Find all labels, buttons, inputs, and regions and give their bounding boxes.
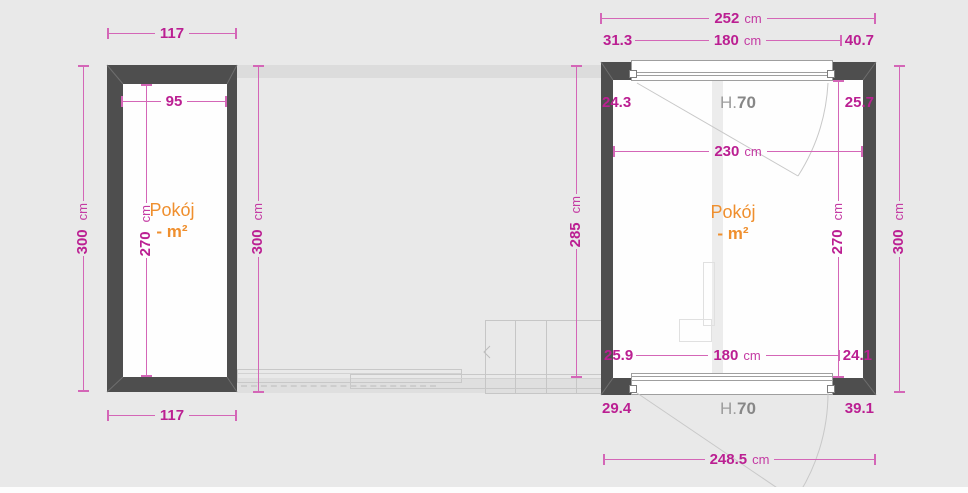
dim-label: 300cm — [250, 201, 266, 256]
dim-unit: cm — [752, 453, 774, 466]
dim-value: 117 — [155, 408, 189, 423]
window-bottom-body — [631, 380, 833, 395]
right-room-label: Pokój - m² — [691, 202, 775, 244]
window-hinge — [827, 70, 835, 78]
dim-segment-left: 24.3 — [599, 95, 634, 110]
dim-label: 270cm — [830, 201, 846, 256]
dim-line — [615, 151, 709, 152]
dim-tick — [78, 390, 89, 392]
dim-left-room-bottom-width: 117 — [107, 407, 237, 423]
left-room-label: Pokój - m² — [130, 200, 214, 242]
window-hinge — [827, 385, 835, 393]
dim-unit: cm — [744, 145, 766, 158]
stair-step — [516, 321, 546, 393]
dim-value: 117 — [155, 26, 189, 41]
dim-segment-right: 39.1 — [842, 401, 877, 416]
dim-line — [576, 67, 577, 194]
room-name: Pokój — [130, 200, 214, 222]
dim-right-room-inner-width: 230 cm — [613, 143, 863, 159]
dim-value: 180 — [708, 348, 743, 363]
dim-tick — [253, 391, 264, 393]
dim-line — [146, 258, 147, 375]
window-bottom — [629, 372, 835, 397]
dim-segment-right: 24.1 — [840, 348, 875, 363]
dim-tick — [141, 375, 152, 377]
dim-segment-right: 40.7 — [842, 33, 877, 48]
room-area: - m² — [130, 222, 214, 242]
dim-line — [766, 40, 840, 41]
dim-tick — [874, 13, 876, 24]
dim-left-room-outer-height-right: 300cm — [251, 65, 265, 393]
dim-line — [767, 151, 861, 152]
dim-left-room-outer-height-left: 300cm — [76, 65, 90, 392]
terrace-shadow-top — [237, 65, 601, 78]
dim-line — [258, 257, 259, 391]
right-room-faint-outline — [679, 319, 712, 342]
dim-tick — [571, 376, 582, 378]
dim-segment-right: 25.7 — [842, 95, 877, 110]
dim-left-room-top-width: 117 — [107, 25, 237, 41]
dim-line — [899, 257, 900, 391]
dim-tick — [861, 146, 863, 157]
dim-line — [774, 459, 874, 460]
dim-label: 300cm — [891, 201, 907, 256]
dim-value: 248.5 — [705, 452, 753, 467]
dim-line — [605, 459, 705, 460]
floor-plan-canvas: 117 95 117 300cm 270cm 300cm Pokój - m² … — [0, 0, 968, 493]
dim-line — [899, 67, 900, 201]
dim-right-room-total-bottom-width: 248.5 cm — [603, 451, 876, 467]
dim-line — [83, 67, 84, 201]
window-hinge — [629, 385, 637, 393]
dim-segment-left: 25.9 — [601, 348, 636, 363]
dim-line — [258, 67, 259, 201]
dim-line — [635, 40, 709, 41]
dim-unit: cm — [743, 349, 765, 362]
dim-right-room-bottom-inner: 25.9 180 cm 24.1 — [601, 347, 875, 363]
dim-tick — [833, 376, 844, 378]
dim-value: 95 — [161, 94, 188, 109]
dim-line — [767, 18, 874, 19]
dim-right-room-outer-height: 300cm — [892, 65, 906, 393]
dim-line — [109, 33, 155, 34]
dim-unit: cm — [744, 12, 766, 25]
dim-line — [189, 415, 235, 416]
dim-right-room-inner-height: 270cm — [831, 80, 845, 378]
dim-hall-height: 285cm — [569, 65, 583, 378]
dim-value: 252 — [709, 11, 744, 26]
room-area: - m² — [691, 224, 775, 244]
door-height-label: H.70 — [720, 94, 756, 111]
dim-tick — [235, 410, 237, 421]
stairs — [485, 320, 607, 394]
dim-segment-left: 31.3 — [600, 33, 635, 48]
dim-tick — [225, 96, 227, 107]
dim-line — [766, 355, 838, 356]
window-top-track — [631, 72, 833, 81]
dim-line — [187, 101, 225, 102]
dim-tick — [874, 454, 876, 465]
right-room-bottom-outer-row: 29.4 H.70 39.1 — [599, 399, 877, 417]
room-name: Pokój — [691, 202, 775, 224]
dim-line — [636, 355, 708, 356]
dim-unit: cm — [744, 34, 766, 47]
dim-value: 230 — [709, 144, 744, 159]
dim-value: 180 — [709, 33, 744, 48]
dim-segment-left: 29.4 — [599, 401, 634, 416]
dim-line — [838, 82, 839, 201]
dim-tick — [894, 391, 905, 393]
window-hinge — [629, 70, 637, 78]
dim-line — [109, 415, 155, 416]
dim-right-room-top-split: 31.3 180 cm 40.7 — [600, 32, 877, 48]
dim-tick — [235, 28, 237, 39]
dim-label: 285cm — [568, 194, 584, 249]
dim-line — [146, 86, 147, 203]
window-top — [629, 59, 835, 83]
stair-step — [486, 321, 516, 393]
dim-line — [602, 18, 709, 19]
door-height-label: H.70 — [720, 400, 756, 417]
dim-right-room-total-width: 252 cm — [600, 10, 876, 26]
right-room-faint-outline — [703, 262, 715, 326]
dim-line — [189, 33, 235, 34]
dim-line — [83, 256, 84, 390]
dim-left-room-inner-width: 95 — [121, 93, 227, 109]
bottom-white-strip — [0, 487, 968, 493]
dim-line — [576, 249, 577, 376]
deck-dashed-line — [241, 385, 436, 387]
dim-label: 300cm — [75, 201, 91, 256]
